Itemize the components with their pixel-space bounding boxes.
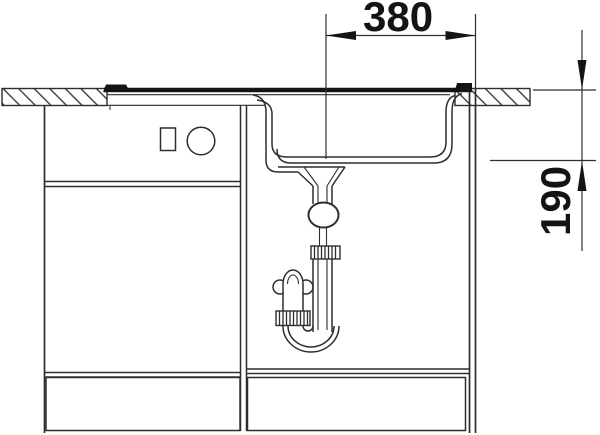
sink-installation-diagram: 380 190	[0, 0, 600, 435]
base-cabinet	[45, 89, 476, 433]
sink-rim-left-curl	[103, 85, 130, 93]
plinth-panel-left	[46, 378, 240, 431]
arrow-down-icon	[578, 60, 587, 90]
funnel-right-outer-slope	[332, 167, 345, 186]
plinth-panel-right	[248, 378, 466, 431]
diagram-canvas: 380 190	[0, 0, 600, 435]
arrow-left-icon	[326, 31, 356, 40]
panel-circle-symbol	[187, 127, 215, 155]
countertop-left-hatch	[2, 89, 107, 106]
bowl-left-outer-wall	[253, 95, 298, 172]
sink	[103, 83, 472, 186]
trap-u-bend-inner	[303, 326, 313, 331]
arrow-right-icon	[446, 31, 476, 40]
funnel-right-inner-slope	[327, 167, 339, 186]
bowl-inner-contour	[257, 96, 455, 158]
dimension-190: 190	[490, 30, 596, 251]
ribbed-nut-upper	[311, 246, 340, 259]
panel-square-symbol	[161, 128, 176, 151]
dimension-380: 380	[326, 0, 476, 159]
slip-joint-ring	[309, 203, 339, 228]
sink-rim-right-clip	[455, 83, 472, 91]
funnel-left-outer-slope	[298, 172, 313, 186]
ribbed-nut-lower	[276, 311, 310, 326]
drain-siphon	[273, 186, 340, 352]
dim-label-380: 380	[363, 0, 433, 40]
bowl-outer-contour	[277, 94, 462, 164]
dim-label-190: 190	[532, 166, 579, 236]
